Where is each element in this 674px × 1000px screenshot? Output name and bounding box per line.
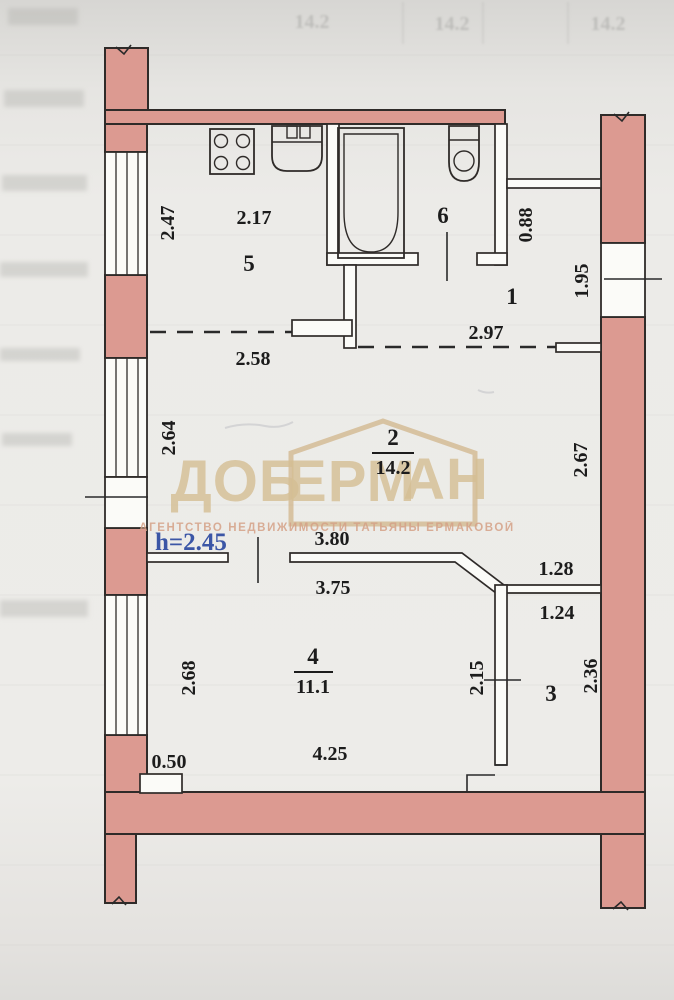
- pencil-scribble: [478, 390, 494, 393]
- room-number-storage: 3: [545, 681, 557, 706]
- window-living-left: [105, 358, 147, 477]
- room-number-bedroom: 4: [307, 644, 319, 669]
- dim-bedroom-top: 3.75: [316, 577, 351, 599]
- watermark-text-right: АН: [403, 447, 489, 512]
- wall-left-segment: [105, 124, 147, 152]
- dim-living-top: 2.58: [236, 348, 271, 370]
- room-number-living: 2: [387, 425, 399, 450]
- bleedthrough-layer: 14.2 14.2 14.2: [295, 2, 626, 44]
- wall-left-segment: [105, 528, 147, 595]
- dim-bedroom-left: 2.68: [178, 661, 200, 696]
- wall-bathroom-east: [495, 124, 507, 265]
- dim-bedroom-closet-side: 2.15: [466, 661, 488, 696]
- window-hallway-right: [601, 243, 645, 317]
- bathtub-icon: [338, 128, 404, 258]
- kitchen-duct-frame: [292, 320, 352, 336]
- dim-living-bottom: 3.80: [315, 528, 350, 550]
- pencil-scribble: [225, 422, 293, 428]
- window-bedroom-left: [105, 595, 147, 735]
- area-bedroom: 11.1: [296, 676, 330, 698]
- stove-icon: [210, 129, 254, 174]
- floorplan-page: 14.2 14.2 14.2: [0, 0, 674, 1000]
- watermark-text-left: ДОБ: [170, 449, 301, 514]
- dim-kitchen-left: 2.47: [157, 206, 179, 241]
- wall-bathroom-south-right: [477, 253, 507, 265]
- dim-hallway-niche: 0.88: [515, 208, 537, 243]
- bedroom-nook: [140, 774, 182, 793]
- wall-hallway-north: [507, 179, 601, 188]
- fixtures: [210, 126, 479, 258]
- agency-watermark: ДОБ ЕРМ АН АГЕНТСТВО НЕДВИЖИМОСТИ ТАТЬЯН…: [139, 421, 515, 534]
- wall-bottom-left-extension: [105, 834, 136, 903]
- dim-living-right: 2.67: [570, 443, 592, 478]
- ceiling-height-label: h=2.45: [155, 529, 227, 556]
- dim-bedroom-bottom: 4.25: [313, 743, 348, 765]
- floorplan-canvas: 14.2 14.2 14.2: [0, 0, 674, 1000]
- bleedthrough-smudges: [0, 8, 88, 617]
- room-number-bathroom: 6: [437, 203, 449, 228]
- wall-left-blank-section: [105, 477, 147, 528]
- window-kitchen-left: [105, 152, 147, 275]
- wall-top-horizontal: [105, 110, 505, 124]
- dim-storage-top: 1.24: [540, 602, 575, 624]
- dim-hallway-window: 1.95: [571, 264, 593, 299]
- bleedthrough-value: 14.2: [295, 11, 330, 33]
- kitchen-sink-icon: [272, 126, 322, 171]
- dim-living-left: 2.64: [158, 421, 180, 456]
- dim-storage-ledge: 1.28: [539, 558, 574, 580]
- bleedthrough-value: 14.2: [591, 13, 626, 35]
- washbasin-icon: [449, 126, 479, 181]
- windows: [105, 152, 645, 735]
- bleedthrough-value: 14.2: [435, 13, 470, 35]
- bedroom-corner-step: [467, 775, 495, 792]
- wall-right-upper: [601, 115, 645, 243]
- dim-storage-right: 2.36: [580, 659, 602, 694]
- wall-bottom: [105, 792, 645, 834]
- area-living: 14.2: [376, 457, 411, 479]
- wall-living-northeast: [556, 343, 601, 352]
- wall-storage-west: [495, 585, 507, 765]
- wall-left-segment: [105, 275, 147, 358]
- room-number-hallway: 1: [506, 284, 518, 309]
- dim-kitchen-width: 2.17: [237, 207, 272, 229]
- dim-hallway-width: 2.97: [469, 322, 504, 344]
- room-number-kitchen: 5: [243, 251, 255, 276]
- dim-bedroom-nook: 0.50: [152, 751, 187, 773]
